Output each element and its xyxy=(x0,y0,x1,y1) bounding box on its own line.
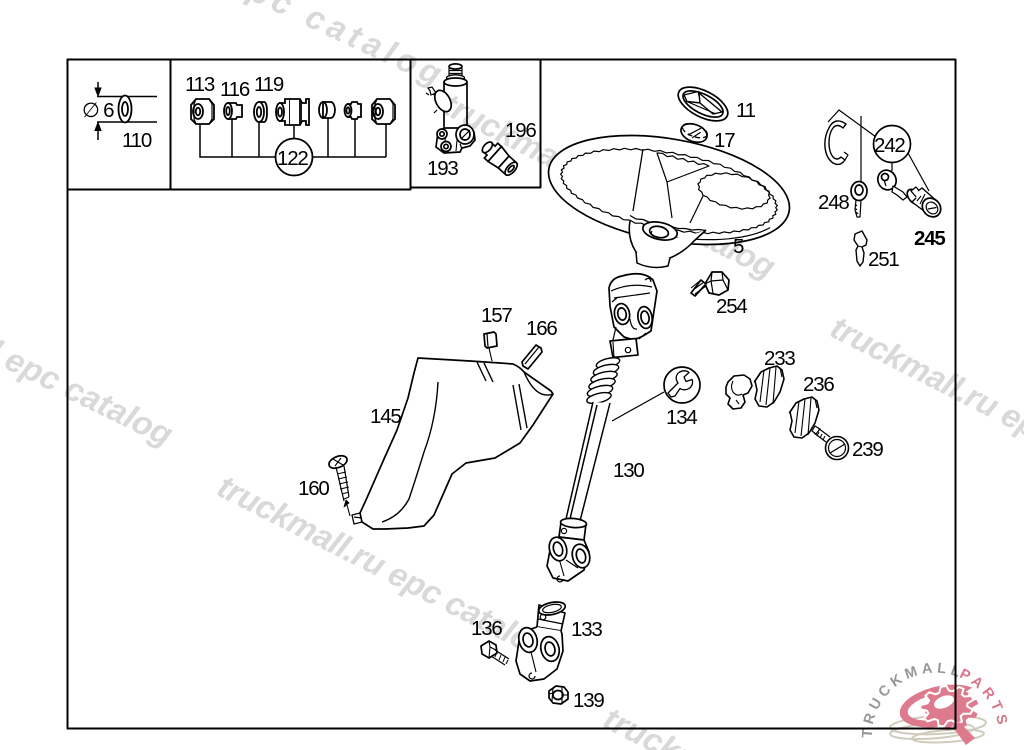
svg-text:251: 251 xyxy=(868,248,899,271)
svg-text:245: 245 xyxy=(914,227,945,250)
svg-text:11: 11 xyxy=(736,99,756,122)
svg-text:122: 122 xyxy=(277,147,308,170)
svg-text:193: 193 xyxy=(427,157,458,180)
svg-text:239: 239 xyxy=(852,438,883,461)
svg-text:236: 236 xyxy=(803,373,834,396)
svg-text:166: 166 xyxy=(526,317,557,340)
svg-text:133: 133 xyxy=(571,618,602,641)
svg-text:160: 160 xyxy=(298,477,329,500)
svg-text:17: 17 xyxy=(714,129,735,152)
svg-text:157: 157 xyxy=(481,304,512,327)
svg-text:113: 113 xyxy=(185,73,215,96)
svg-text:110: 110 xyxy=(122,129,152,152)
svg-text:254: 254 xyxy=(716,295,747,318)
svg-text:119: 119 xyxy=(254,73,284,96)
svg-text:130: 130 xyxy=(613,459,644,482)
svg-text:248: 248 xyxy=(818,191,849,214)
svg-text:242: 242 xyxy=(874,134,905,157)
svg-text:233: 233 xyxy=(764,347,795,370)
svg-text:5: 5 xyxy=(733,235,744,258)
svg-text:∅ 6: ∅ 6 xyxy=(82,99,114,122)
svg-text:196: 196 xyxy=(505,119,536,142)
svg-text:134: 134 xyxy=(666,406,697,429)
svg-text:136: 136 xyxy=(471,617,502,640)
svg-text:116: 116 xyxy=(220,78,250,101)
svg-text:145: 145 xyxy=(370,405,401,428)
svg-text:139: 139 xyxy=(573,689,604,712)
